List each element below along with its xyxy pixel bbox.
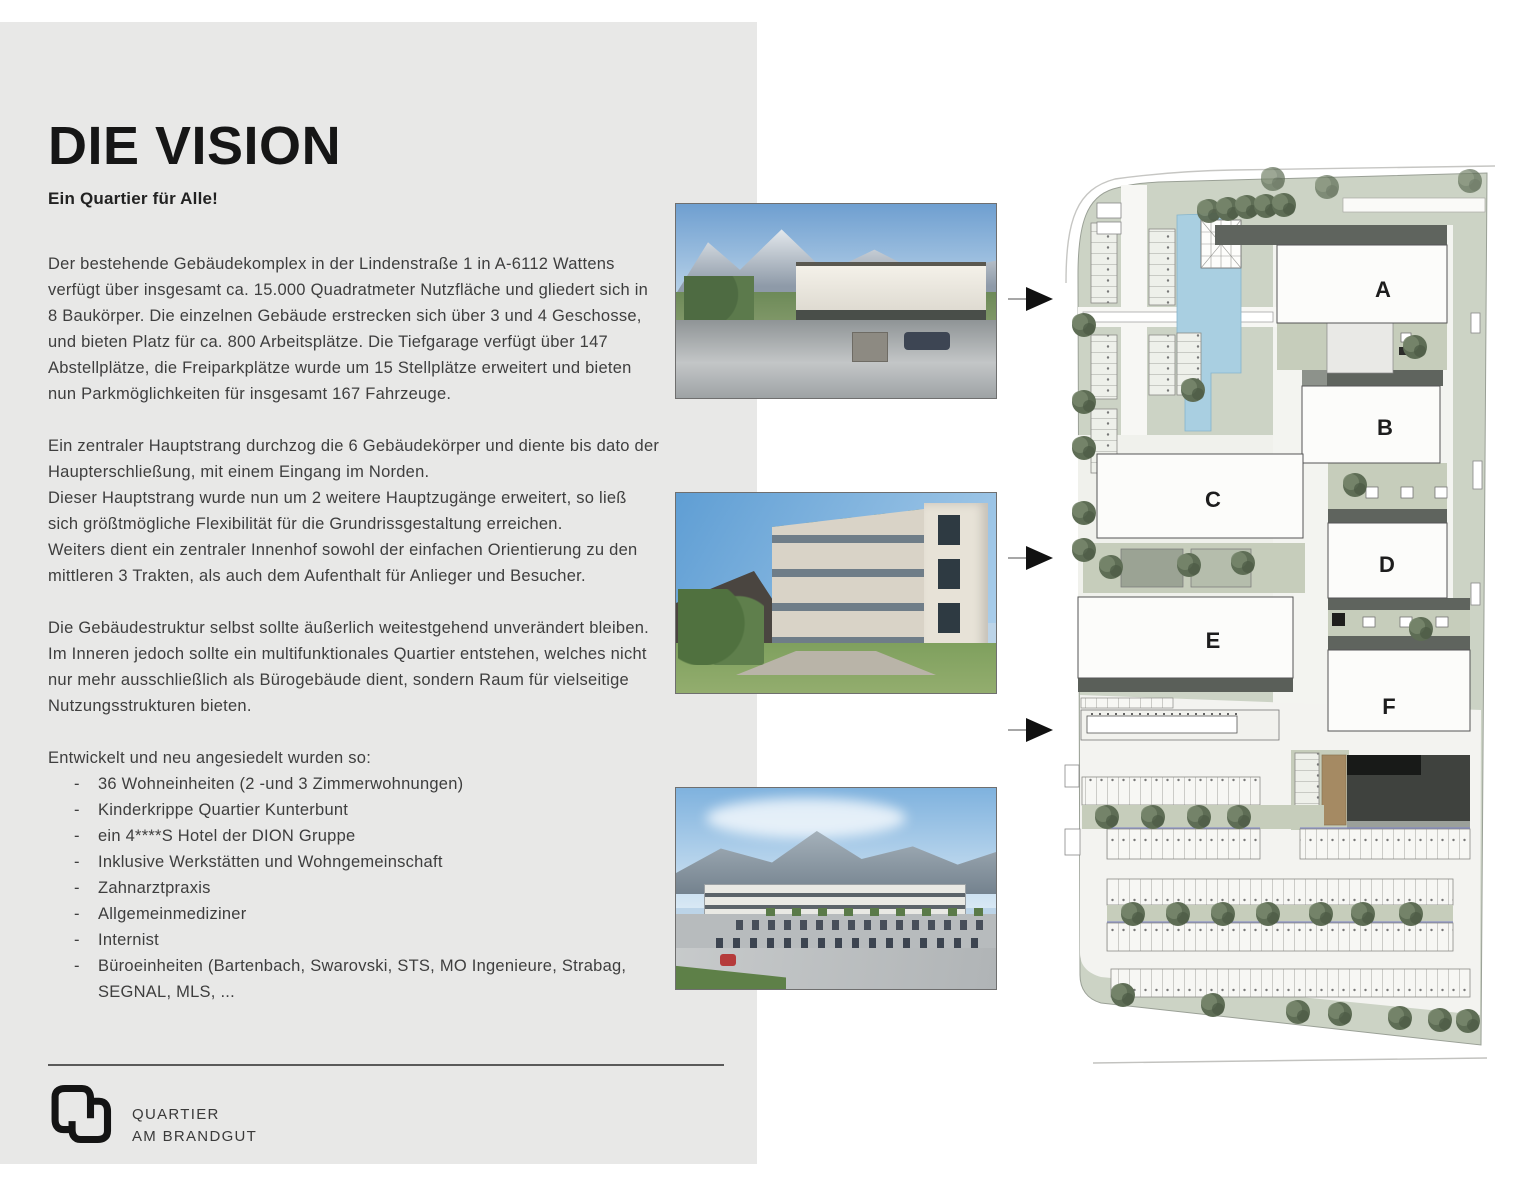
building-b [1302, 386, 1440, 463]
list-bullet: - [74, 875, 80, 901]
list-bullet: - [74, 927, 80, 953]
list-item-text: Allgemeinmediziner [98, 905, 246, 923]
photo3-cars-row1 [736, 920, 986, 930]
arrow-icon-3 [1008, 717, 1056, 743]
logo-line-1: QUARTIER [132, 1104, 257, 1126]
list-bullet: - [74, 901, 80, 927]
arrow-icon-1 [1008, 286, 1056, 312]
page-subtitle: Ein Quartier für Alle! [48, 189, 660, 209]
list-item-text: 36 Wohneinheiten (2 -und 3 Zimmerwohnung… [98, 775, 463, 793]
site-plan-drawing: A B C D E F [1063, 165, 1501, 1070]
building-label-a: A [1375, 277, 1391, 302]
building-e [1078, 597, 1293, 678]
photo3-cloud [706, 798, 906, 838]
brown-patch [1322, 755, 1346, 825]
photo3-trees-row [766, 908, 996, 916]
photo-entrance-rendering [675, 203, 997, 399]
paragraph-1: Der bestehende Gebäudekomplex in der Lin… [48, 251, 660, 407]
photo2-windows [938, 515, 960, 635]
photo1-sign [852, 332, 888, 362]
arrow-icon-2 [1008, 545, 1056, 571]
logo-text: QUARTIER AM BRANDGUT [132, 1080, 257, 1148]
page-title: DIE VISION [48, 118, 660, 175]
roof-walkway [1343, 198, 1485, 212]
list-item-text: Kinderkrippe Quartier Kunterbunt [98, 801, 348, 819]
building-label-e: E [1206, 628, 1221, 653]
list-item-text: Inklusive Werkstätten und Wohngemeinscha… [98, 853, 443, 871]
list-item-1: -36 Wohneinheiten (2 -und 3 Zimmerwohnun… [48, 771, 660, 797]
photo1-trees [684, 276, 754, 322]
photo-aerial-rendering [675, 787, 997, 990]
building-label-d: D [1379, 552, 1395, 577]
list-bullet: - [74, 823, 80, 849]
list-item-6: -Allgemeinmediziner [48, 901, 660, 927]
list-intro: Entwickelt und neu angesiedelt wurden so… [48, 745, 660, 771]
footer-divider [48, 1064, 724, 1066]
list-bullet: - [74, 849, 80, 875]
list-item-2: -Kinderkrippe Quartier Kunterbunt [48, 797, 660, 823]
logo-mark-icon [48, 1080, 116, 1148]
page: { "document": { "title": "DIE VISION", "… [0, 0, 1536, 1188]
photo1-car [904, 332, 950, 350]
photo-courtyard-rendering [675, 492, 997, 694]
site-plan: A B C D E F [1063, 165, 1501, 1070]
list-item-7: -Internist [48, 927, 660, 953]
building-label-c: C [1205, 487, 1221, 512]
paragraph-2a: Ein zentraler Hauptstrang durchzog die 6… [48, 433, 660, 485]
photo3-cars-row2 [716, 938, 986, 948]
paragraph-2c: Weiters dient ein zentraler Innenhof sow… [48, 537, 660, 589]
list-item-5: -Zahnarztpraxis [48, 875, 660, 901]
list-item-3: -ein 4****S Hotel der DION Gruppe [48, 823, 660, 849]
photo2-trees [678, 589, 764, 665]
building-f [1328, 650, 1470, 731]
list-item-text: Büroeinheiten (Bartenbach, Swarovski, ST… [98, 957, 626, 1001]
photo2-facade-green [772, 509, 924, 659]
list-item-text: Internist [98, 931, 159, 949]
building-c [1097, 454, 1303, 538]
photo1-building [796, 262, 986, 324]
text-column: DIE VISION Ein Quartier für Alle! Der be… [48, 118, 660, 1005]
list-bullet: - [74, 797, 80, 823]
logo-line-2: AM BRANDGUT [132, 1126, 257, 1148]
list-item-text: ein 4****S Hotel der DION Gruppe [98, 827, 355, 845]
paragraph-3: Die Gebäudestruktur selbst sollte äußerl… [48, 615, 660, 719]
bottom-street-line [1093, 1058, 1487, 1063]
logo: QUARTIER AM BRANDGUT [48, 1080, 257, 1148]
building-a [1277, 245, 1447, 323]
list-bullet: - [74, 771, 80, 797]
building-label-f: F [1382, 694, 1395, 719]
building-label-b: B [1377, 415, 1393, 440]
developments-list: -36 Wohneinheiten (2 -und 3 Zimmerwohnun… [48, 771, 660, 1005]
list-item-4: -Inklusive Werkstätten und Wohngemeinsch… [48, 849, 660, 875]
paragraph-2b: Dieser Hauptstrang wurde nun um 2 weiter… [48, 485, 660, 537]
photo3-red-car [720, 954, 736, 966]
list-item-8: -Büroeinheiten (Bartenbach, Swarovski, S… [48, 953, 660, 1005]
list-bullet: - [74, 953, 80, 979]
list-item-text: Zahnarztpraxis [98, 879, 211, 897]
